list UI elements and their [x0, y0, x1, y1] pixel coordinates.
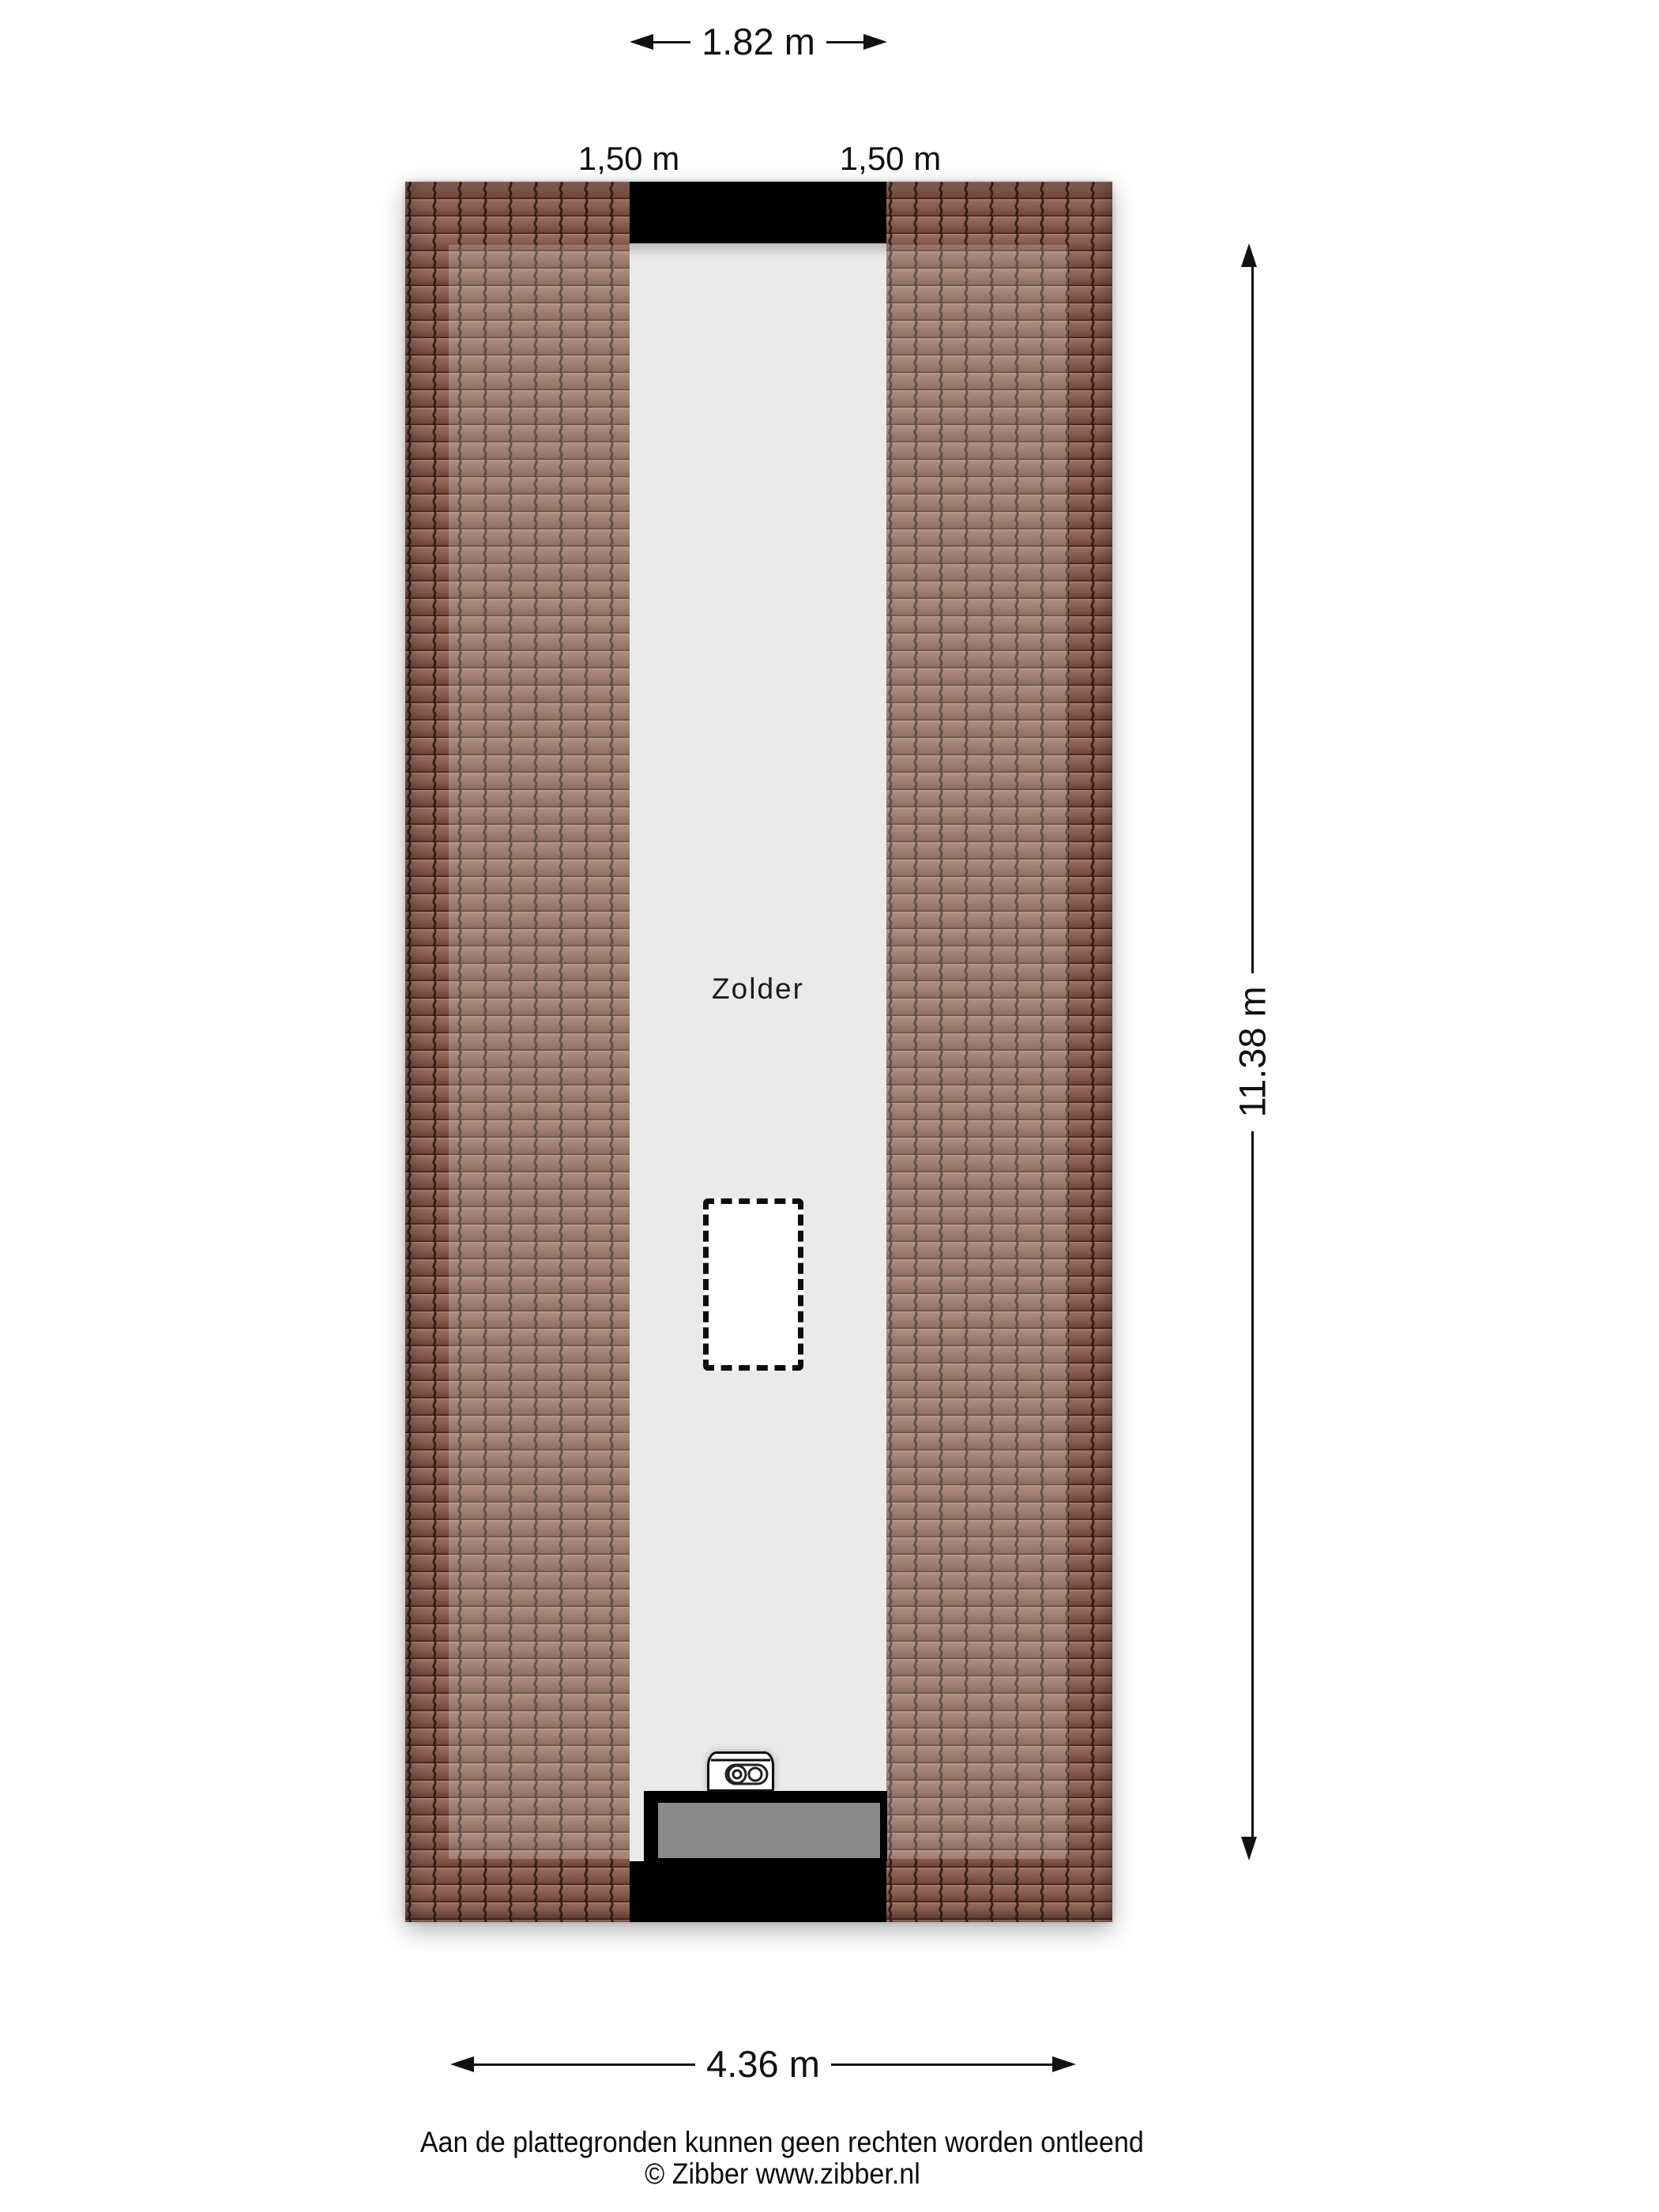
dimension-right-label-box: 11.38 m	[1187, 973, 1318, 1131]
wall-top	[630, 182, 886, 243]
dimension-shaft	[1251, 1131, 1254, 1838]
dimension-shaft	[653, 41, 690, 43]
dimension-bottom: 4.36 m	[450, 2045, 1076, 2084]
floorplan-page: 1.82 m 1,50 m 1,50 m	[0, 0, 1659, 2212]
dimension-shaft	[474, 2063, 695, 2066]
dimension-right-label: 11.38 m	[1231, 986, 1274, 1117]
dimension-shaft	[831, 2063, 1052, 2066]
room-label: Zolder	[630, 972, 886, 1006]
arrowhead-right-icon	[863, 34, 887, 50]
arrowhead-up-icon	[1241, 243, 1257, 267]
dormer-window	[644, 1791, 887, 1861]
arrowhead-left-icon	[630, 34, 653, 50]
footer-disclaimer: Aan de plattegronden kunnen geen rechten…	[47, 2127, 1517, 2158]
footer-credit: © Zibber www.zibber.nl	[47, 2158, 1517, 2190]
dimension-bottom-label: 4.36 m	[706, 2045, 820, 2084]
dormer-glass	[658, 1803, 880, 1858]
dimension-shaft	[1251, 267, 1254, 973]
footer: Aan de plattegronden kunnen geen rechten…	[47, 2127, 1517, 2190]
arrowhead-down-icon	[1241, 1837, 1257, 1860]
eave-height-label-left: 1,50 m	[510, 141, 747, 176]
attic-floor	[630, 182, 886, 1922]
boiler-icon	[707, 1751, 774, 1792]
dimension-top-label: 1.82 m	[702, 22, 815, 62]
dimension-shaft	[826, 41, 863, 43]
eave-height-label-right: 1,50 m	[772, 141, 1009, 176]
dimension-top: 1.82 m	[630, 22, 887, 62]
wall-shadow	[630, 243, 886, 258]
arrowhead-left-icon	[450, 2056, 474, 2072]
floorplan: Zolder	[405, 182, 1112, 1922]
dimension-right: 11.38 m	[1232, 243, 1272, 1860]
arrowhead-right-icon	[1052, 2056, 1076, 2072]
wall-bottom	[630, 1861, 886, 1922]
stair-opening	[703, 1198, 803, 1371]
